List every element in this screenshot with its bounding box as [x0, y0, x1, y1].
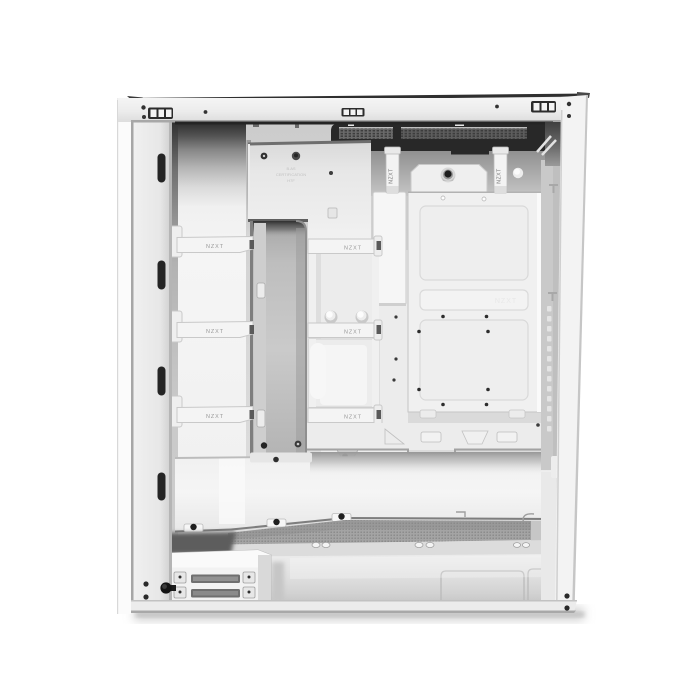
svg-text:CERTIFICATION: CERTIFICATION [276, 172, 306, 177]
svg-text:NZXT: NZXT [344, 415, 362, 421]
svg-text:H7F: H7F [287, 178, 295, 183]
svg-text:NZXT: NZXT [206, 414, 224, 420]
svg-text:NZXT: NZXT [206, 244, 224, 250]
svg-text:NZXT: NZXT [497, 168, 503, 184]
svg-text:NZXT: NZXT [495, 298, 517, 305]
svg-text:B.AS: B.AS [286, 166, 295, 171]
svg-text:NZXT: NZXT [344, 246, 362, 252]
svg-text:NZXT: NZXT [206, 329, 224, 335]
svg-text:NZXT: NZXT [389, 168, 395, 184]
svg-text:NZXT: NZXT [344, 330, 362, 336]
